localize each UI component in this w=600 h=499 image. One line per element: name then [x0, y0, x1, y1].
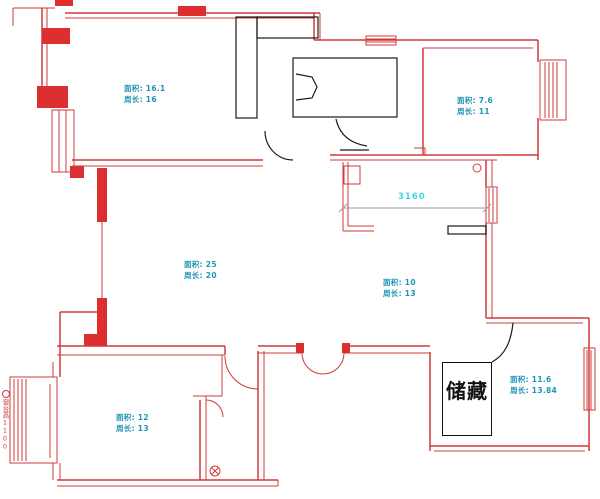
storage-room-text: 储藏	[446, 375, 488, 435]
area-text: 面积: 11.6	[510, 374, 557, 385]
window-corridor-right	[486, 187, 497, 223]
left-edge-annotation: 窗台高1100	[1, 399, 8, 451]
wardrobe	[236, 17, 257, 118]
note-circle	[3, 391, 10, 398]
perimeter-text: 周长: 13	[383, 288, 416, 299]
room-label-bedroom-top-left: 面积: 16.1 周长: 16	[124, 83, 166, 105]
area-text: 面积: 10	[383, 277, 416, 288]
room-label-mid-right: 面积: 10 周长: 13	[383, 277, 416, 299]
perimeter-text: 周长: 13.84	[510, 385, 557, 396]
center-bedroom-door	[336, 119, 369, 150]
bed	[293, 58, 397, 117]
pillow	[296, 74, 317, 100]
windows	[10, 36, 595, 463]
area-text: 面积: 7.6	[457, 95, 493, 106]
dimension-line	[339, 204, 491, 212]
kitchen-counter	[448, 226, 486, 234]
window-bedroom-left	[52, 110, 74, 172]
perimeter-text: 周长: 20	[184, 270, 217, 281]
area-text: 面积: 16.1	[124, 83, 166, 94]
room-label-storage: 面积: 11.6 周长: 13.84	[510, 374, 557, 396]
perimeter-text: 周长: 11	[457, 106, 493, 117]
furniture	[236, 17, 486, 234]
area-text: 面积: 25	[184, 259, 217, 270]
dimension-text: 3160	[398, 192, 426, 202]
perimeter-text: 周长: 13	[116, 423, 149, 434]
bay-window-bottom-left	[10, 377, 57, 463]
walls	[13, 8, 589, 486]
room-label-top-right: 面积: 7.6 周长: 11	[457, 95, 493, 117]
floor-plan-drawing	[0, 0, 600, 499]
bay-window-right	[540, 60, 566, 120]
doors	[265, 119, 513, 374]
bedroom-door-arc	[265, 131, 293, 160]
symbols	[3, 164, 482, 476]
entrance-double-door	[302, 353, 344, 374]
wall-blocks	[37, 0, 350, 353]
door-stop-circle	[473, 164, 481, 172]
floor-plan-canvas: 面积: 16.1 周长: 16 面积: 7.6 周长: 11 面积: 25 周长…	[0, 0, 600, 499]
perimeter-text: 周长: 16	[124, 94, 166, 105]
cabinet-shelf	[257, 17, 318, 38]
floor-drain-symbol	[210, 466, 220, 476]
storage-door-arc	[492, 323, 513, 362]
storage-room-box: 储藏	[442, 362, 492, 436]
room-label-living: 面积: 25 周长: 20	[184, 259, 217, 281]
area-text: 面积: 12	[116, 412, 149, 423]
room-label-bottom-left: 面积: 12 周长: 13	[116, 412, 149, 434]
